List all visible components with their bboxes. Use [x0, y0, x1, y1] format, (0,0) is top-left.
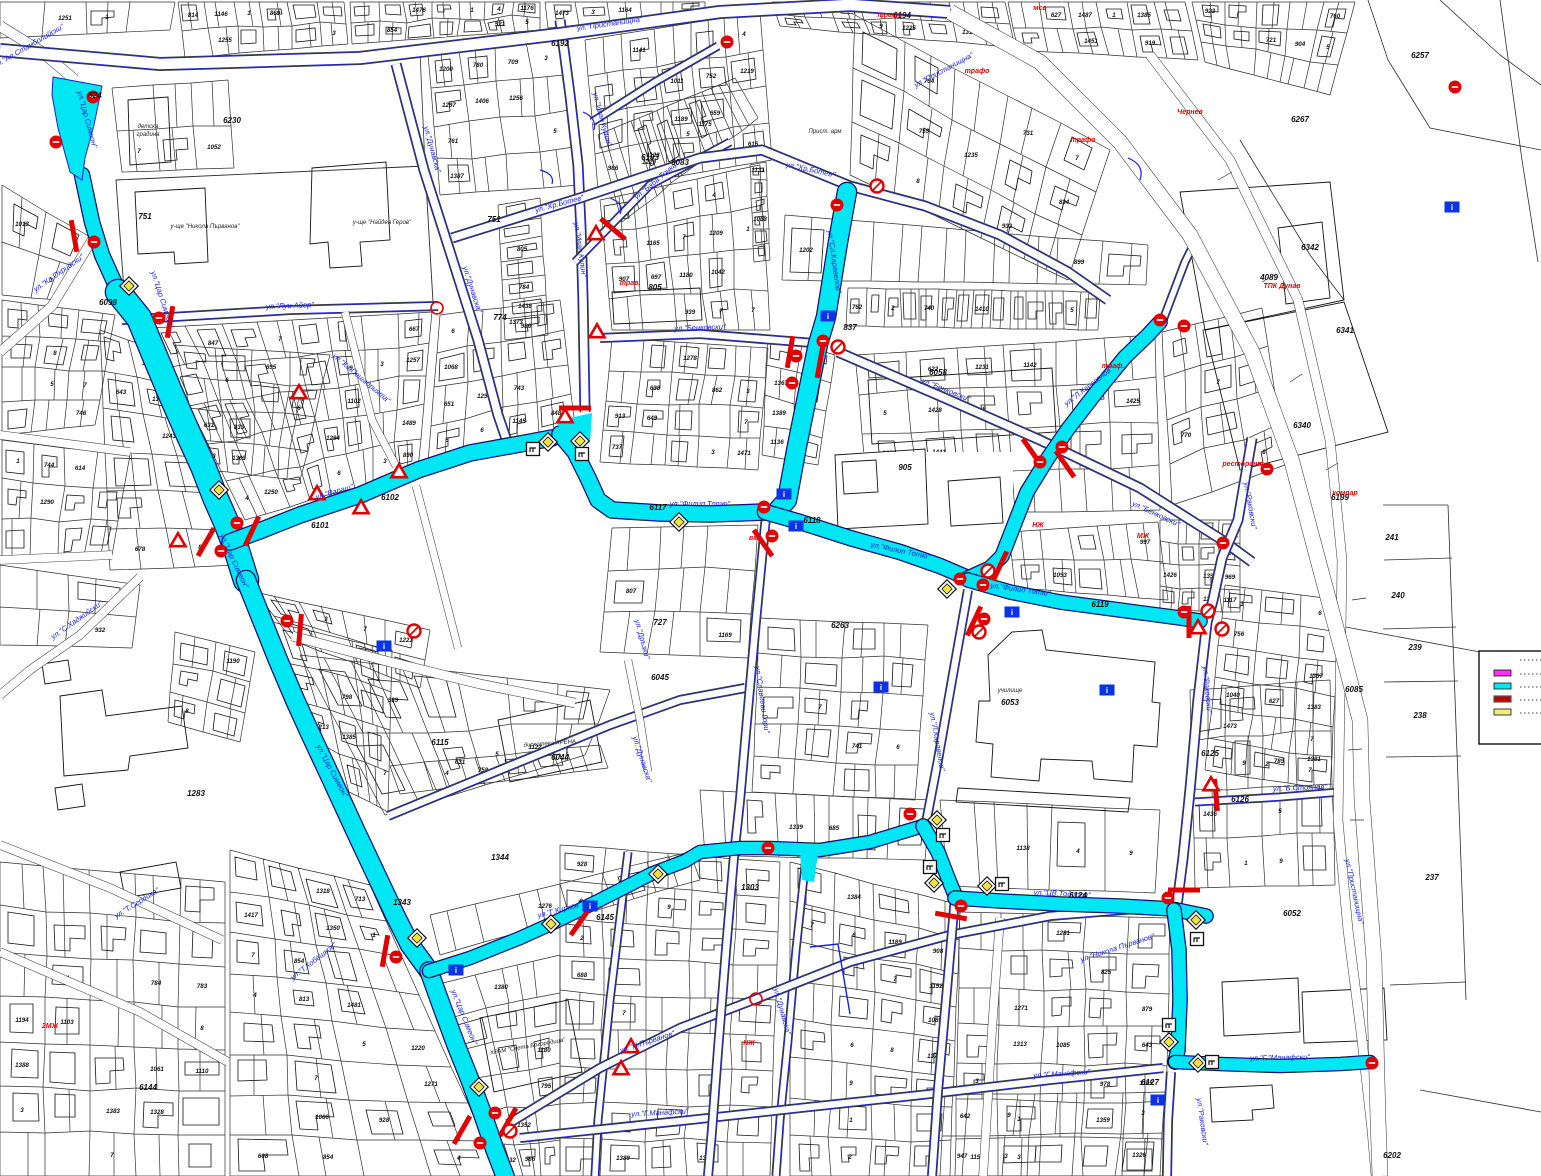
- svg-text:783: 783: [197, 983, 208, 990]
- svg-text:7: 7: [1075, 155, 1079, 162]
- svg-text:4: 4: [1075, 848, 1080, 855]
- svg-text:1141: 1141: [632, 47, 646, 54]
- svg-text:у-ще "Никола Първанов": у-ще "Никола Първанов": [170, 224, 241, 230]
- svg-text:1189: 1189: [674, 116, 688, 123]
- svg-text:1142: 1142: [1023, 362, 1037, 369]
- svg-text:траф.: траф.: [1102, 363, 1125, 370]
- svg-text:5: 5: [495, 751, 499, 758]
- svg-text:1103: 1103: [60, 1019, 74, 1026]
- svg-text:6: 6: [850, 1042, 854, 1049]
- svg-text:6: 6: [896, 744, 900, 751]
- svg-text:1136: 1136: [770, 439, 784, 446]
- svg-text:608: 608: [258, 1153, 269, 1160]
- svg-text:1110: 1110: [196, 1068, 209, 1075]
- svg-text:6199: 6199: [1331, 493, 1349, 502]
- svg-text:7: 7: [278, 336, 282, 343]
- svg-text:7: 7: [251, 952, 255, 959]
- svg-text:6144: 6144: [139, 1083, 157, 1092]
- svg-text:4: 4: [244, 495, 249, 502]
- svg-text:9: 9: [849, 1080, 853, 1087]
- svg-text:7: 7: [1308, 767, 1312, 774]
- svg-text:1436: 1436: [1203, 811, 1217, 818]
- svg-text:1145: 1145: [512, 418, 526, 425]
- svg-text:1307: 1307: [1309, 673, 1323, 680]
- svg-text:7: 7: [744, 419, 748, 426]
- svg-text:847: 847: [208, 340, 219, 347]
- svg-text:i: i: [1451, 203, 1453, 212]
- svg-text:740: 740: [924, 305, 935, 312]
- svg-text:939: 939: [685, 309, 696, 316]
- svg-text:1011: 1011: [670, 78, 684, 85]
- svg-text:трафо: трафо: [878, 12, 904, 19]
- svg-text:4: 4: [711, 192, 716, 199]
- svg-text:1194: 1194: [15, 1017, 29, 1024]
- svg-text:3: 3: [20, 1107, 24, 1114]
- svg-text:6267: 6267: [1291, 115, 1309, 124]
- svg-text:986: 986: [521, 323, 532, 330]
- svg-text:3: 3: [380, 361, 384, 368]
- svg-text:НЖ: НЖ: [743, 1040, 755, 1047]
- svg-text:6192: 6192: [551, 39, 569, 48]
- svg-text:ул."Г."Манафски": ул."Г."Манафски": [1249, 1052, 1310, 1062]
- svg-text:8: 8: [200, 1025, 204, 1032]
- svg-text:1406: 1406: [475, 98, 489, 105]
- svg-text:9: 9: [1129, 850, 1133, 857]
- svg-text:5: 5: [445, 437, 449, 444]
- svg-text:928: 928: [379, 1117, 390, 1124]
- svg-text:923: 923: [1205, 8, 1216, 15]
- svg-text:6202: 6202: [1383, 1151, 1401, 1160]
- svg-text:1257: 1257: [406, 357, 420, 364]
- svg-text:761: 761: [448, 138, 459, 145]
- svg-text:4: 4: [444, 770, 449, 777]
- svg-text:642: 642: [960, 1113, 971, 1120]
- svg-text:2: 2: [1264, 761, 1269, 768]
- svg-text:5: 5: [1326, 44, 1330, 51]
- svg-text:760: 760: [1330, 13, 1341, 20]
- svg-text:805: 805: [648, 283, 662, 292]
- svg-text:933: 933: [1002, 223, 1013, 230]
- svg-text:854: 854: [387, 27, 398, 34]
- svg-text:5: 5: [1070, 307, 1074, 314]
- svg-text:1068: 1068: [444, 364, 458, 371]
- svg-text:854: 854: [323, 1154, 334, 1161]
- svg-text:741: 741: [852, 743, 863, 750]
- svg-text:6342: 6342: [1301, 243, 1319, 252]
- svg-text:6126: 6126: [1231, 795, 1249, 804]
- svg-text:i: i: [795, 522, 797, 531]
- svg-text:1180: 1180: [679, 272, 693, 279]
- svg-text:1013: 1013: [15, 221, 29, 228]
- svg-text:училище: училище: [997, 688, 1023, 694]
- svg-text:1385: 1385: [1137, 12, 1151, 19]
- svg-text:1: 1: [746, 226, 750, 233]
- svg-text:1175: 1175: [698, 121, 712, 128]
- svg-text:1042: 1042: [711, 269, 725, 276]
- svg-text:1473: 1473: [1223, 723, 1237, 730]
- svg-text:3: 3: [544, 55, 548, 62]
- svg-text:1350: 1350: [326, 925, 340, 932]
- svg-text:3: 3: [711, 449, 715, 456]
- svg-text:1283: 1283: [187, 789, 205, 798]
- svg-text:1152: 1152: [929, 983, 943, 990]
- svg-text:905: 905: [898, 463, 912, 472]
- svg-text:6124: 6124: [1069, 891, 1087, 900]
- svg-text:1063: 1063: [753, 216, 767, 223]
- svg-text:5: 5: [50, 381, 54, 388]
- svg-text:997: 997: [1140, 539, 1151, 546]
- svg-text:986: 986: [525, 1156, 536, 1163]
- svg-text:6118: 6118: [803, 516, 821, 525]
- svg-text:i: i: [455, 966, 457, 975]
- svg-text:3: 3: [591, 9, 595, 16]
- svg-text:6115: 6115: [431, 738, 449, 747]
- svg-text:1487: 1487: [1078, 12, 1092, 19]
- svg-text:1: 1: [1240, 601, 1244, 608]
- svg-text:6119: 6119: [1091, 600, 1109, 609]
- svg-text:837: 837: [843, 323, 857, 332]
- svg-text:6: 6: [297, 405, 301, 412]
- svg-text:1417: 1417: [244, 912, 258, 919]
- svg-text:3: 3: [1017, 1154, 1021, 1161]
- svg-text:2: 2: [579, 935, 584, 942]
- svg-text:1278: 1278: [683, 355, 697, 362]
- svg-text:1235: 1235: [964, 152, 978, 159]
- svg-text:651: 651: [444, 401, 455, 408]
- svg-text:1303: 1303: [741, 883, 759, 892]
- svg-text:939: 939: [388, 697, 399, 704]
- svg-text:1: 1: [1244, 860, 1248, 867]
- svg-text:890: 890: [403, 452, 414, 459]
- svg-text:1344: 1344: [491, 853, 509, 862]
- svg-text:4: 4: [496, 6, 501, 13]
- svg-text:6052: 6052: [1283, 909, 1301, 918]
- svg-text:1425: 1425: [1126, 398, 1140, 405]
- svg-text:784: 784: [151, 980, 162, 987]
- svg-text:5: 5: [525, 19, 529, 26]
- svg-text:трав.: трав.: [620, 280, 641, 287]
- svg-text:795: 795: [541, 1083, 552, 1090]
- svg-text:3: 3: [332, 30, 336, 37]
- svg-text:238: 238: [1412, 711, 1427, 720]
- svg-text:i: i: [880, 683, 882, 692]
- svg-text:6044: 6044: [551, 753, 569, 762]
- svg-text:7: 7: [818, 704, 822, 711]
- svg-text:4: 4: [741, 31, 746, 38]
- svg-text:1: 1: [849, 1117, 853, 1124]
- svg-text:6053: 6053: [1001, 698, 1019, 707]
- svg-text:1: 1: [247, 10, 251, 17]
- svg-text:ул."Филип Тотю": ул."Филип Тотю": [669, 499, 731, 508]
- svg-text:ул."Луи Айер": ул."Луи Айер": [265, 300, 315, 311]
- svg-text:1146: 1146: [214, 11, 228, 18]
- svg-text:НЖ: НЖ: [1032, 522, 1044, 529]
- svg-text:7: 7: [682, 234, 686, 241]
- svg-text:1438: 1438: [518, 303, 532, 310]
- svg-text:1117: 1117: [1224, 597, 1237, 604]
- svg-text:3: 3: [1004, 1153, 1008, 1160]
- svg-text:8: 8: [185, 708, 189, 715]
- svg-text:770: 770: [1181, 432, 1192, 439]
- svg-text:1451: 1451: [1084, 38, 1098, 45]
- svg-text:5: 5: [1278, 808, 1282, 815]
- svg-text:744: 744: [44, 462, 55, 469]
- svg-text:6058: 6058: [929, 368, 947, 377]
- svg-text:ресторант: ресторант: [1221, 461, 1263, 468]
- svg-text:834: 834: [1059, 199, 1070, 206]
- svg-text:5: 5: [686, 131, 690, 138]
- svg-text:731: 731: [1023, 130, 1034, 137]
- svg-text:9: 9: [1279, 858, 1283, 865]
- svg-text:825: 825: [1101, 969, 1112, 976]
- svg-text:6098: 6098: [99, 298, 117, 307]
- svg-text:1489: 1489: [402, 420, 416, 427]
- svg-text:921: 921: [495, 21, 506, 28]
- svg-text:1040: 1040: [1226, 692, 1240, 699]
- svg-text:1225: 1225: [902, 25, 916, 32]
- svg-text:3: 3: [1141, 1110, 1145, 1117]
- svg-text:737: 737: [612, 444, 623, 451]
- svg-text:4: 4: [252, 992, 257, 999]
- svg-text:240: 240: [1390, 591, 1405, 600]
- svg-text:1297: 1297: [442, 102, 456, 109]
- svg-text:688: 688: [577, 972, 588, 979]
- svg-text:624: 624: [88, 91, 102, 100]
- svg-text:6341: 6341: [1336, 326, 1354, 335]
- svg-text:627: 627: [1269, 698, 1280, 705]
- svg-text:762: 762: [852, 304, 863, 311]
- svg-text:643: 643: [116, 389, 127, 396]
- svg-text:2: 2: [847, 1154, 852, 1161]
- svg-text:759: 759: [919, 128, 930, 135]
- svg-text:6101: 6101: [311, 521, 329, 530]
- svg-text:1: 1: [372, 932, 376, 939]
- svg-text:1: 1: [470, 7, 474, 14]
- svg-text:i: i: [827, 312, 829, 321]
- svg-text:6: 6: [337, 470, 341, 477]
- svg-text:Чернев: Чернев: [1177, 109, 1203, 116]
- svg-text:1339: 1339: [789, 824, 803, 831]
- svg-text:1387: 1387: [450, 173, 464, 180]
- svg-text:932: 932: [95, 627, 106, 634]
- svg-text:1: 1: [16, 458, 20, 465]
- svg-text:638: 638: [650, 385, 661, 392]
- svg-text:709: 709: [508, 59, 519, 66]
- svg-text:1318: 1318: [316, 888, 330, 895]
- svg-text:743: 743: [514, 385, 525, 392]
- svg-text:1428: 1428: [928, 407, 942, 414]
- svg-text:756: 756: [1234, 631, 1245, 638]
- svg-text:ТПК Дунав: ТПК Дунав: [1263, 283, 1301, 290]
- svg-text:1380: 1380: [494, 984, 508, 991]
- svg-text:i: i: [1106, 686, 1108, 695]
- svg-text:6230: 6230: [223, 116, 241, 125]
- svg-text:1281: 1281: [1056, 930, 1070, 937]
- svg-text:697: 697: [651, 274, 662, 281]
- svg-text:813: 813: [299, 996, 310, 1003]
- svg-text:Прист. арм: Прист. арм: [808, 129, 841, 135]
- svg-text:1473: 1473: [555, 10, 569, 17]
- svg-text:7: 7: [751, 307, 755, 314]
- svg-text:7: 7: [810, 922, 814, 929]
- svg-text:6085: 6085: [1345, 685, 1363, 694]
- svg-text:1093: 1093: [1053, 572, 1067, 579]
- svg-text:1: 1: [1112, 12, 1116, 19]
- svg-text:1102: 1102: [347, 398, 361, 405]
- svg-text:1389: 1389: [616, 1155, 630, 1162]
- svg-text:746: 746: [76, 410, 87, 417]
- svg-text:i: i: [1011, 608, 1013, 617]
- svg-text:1303: 1303: [232, 455, 246, 462]
- svg-text:1164: 1164: [618, 7, 632, 14]
- svg-text:1476: 1476: [412, 7, 426, 14]
- svg-text:1052: 1052: [207, 144, 221, 151]
- svg-text:6257: 6257: [1411, 51, 1429, 60]
- svg-text:1: 1: [105, 14, 109, 21]
- svg-text:899: 899: [1074, 259, 1085, 266]
- svg-text:751: 751: [487, 215, 501, 224]
- svg-text:1176: 1176: [520, 5, 534, 12]
- svg-text:6103: 6103: [641, 153, 659, 162]
- svg-text:6125: 6125: [1201, 749, 1219, 758]
- svg-text:643: 643: [1142, 1042, 1153, 1049]
- svg-text:детска: детска: [138, 124, 159, 130]
- svg-text:9: 9: [667, 904, 671, 911]
- svg-text:862: 862: [712, 387, 723, 394]
- svg-text:237: 237: [1424, 873, 1439, 882]
- svg-text:1200: 1200: [439, 66, 453, 73]
- svg-text:7: 7: [719, 308, 723, 315]
- svg-text:928: 928: [577, 861, 588, 868]
- svg-text:1251: 1251: [58, 15, 72, 22]
- svg-text:i: i: [383, 642, 385, 651]
- svg-text:241: 241: [1384, 533, 1399, 542]
- svg-text:1294: 1294: [326, 435, 340, 442]
- svg-text:у-ще "Найден Геров": у-ще "Найден Геров": [352, 219, 412, 226]
- svg-text:1410: 1410: [975, 306, 989, 313]
- svg-text:1169: 1169: [718, 632, 732, 639]
- svg-text:5: 5: [553, 128, 557, 135]
- svg-text:1313: 1313: [1013, 1041, 1027, 1048]
- svg-text:6117: 6117: [649, 503, 667, 512]
- svg-text:614: 614: [75, 465, 86, 472]
- svg-text:1138: 1138: [1016, 845, 1030, 852]
- svg-text:1326: 1326: [1132, 1152, 1146, 1159]
- svg-text:780: 780: [473, 62, 484, 69]
- svg-text:913: 913: [615, 413, 626, 420]
- svg-text:713: 713: [355, 896, 366, 903]
- svg-text:751: 751: [138, 212, 152, 221]
- svg-text:1383: 1383: [1307, 704, 1321, 711]
- svg-text:вх: вх: [749, 535, 758, 542]
- svg-text:i: i: [783, 490, 785, 499]
- svg-text:7: 7: [1310, 736, 1314, 743]
- svg-text:2МЖ: 2МЖ: [41, 1023, 59, 1030]
- svg-text:1231: 1231: [975, 364, 989, 371]
- svg-text:6083: 6083: [671, 158, 689, 167]
- svg-text:1359: 1359: [1096, 1117, 1110, 1124]
- svg-text:1061: 1061: [150, 1066, 164, 1073]
- svg-text:1328: 1328: [150, 1109, 164, 1116]
- svg-text:1256: 1256: [509, 95, 523, 102]
- svg-text:3: 3: [383, 458, 387, 465]
- svg-text:7: 7: [110, 1152, 114, 1159]
- svg-text:649: 649: [647, 415, 658, 422]
- svg-text:919: 919: [1145, 40, 1156, 47]
- svg-text:i: i: [1157, 1096, 1159, 1105]
- svg-text:1: 1: [1017, 1116, 1021, 1123]
- svg-text:978: 978: [1100, 1081, 1111, 1088]
- svg-text:6: 6: [225, 377, 229, 384]
- svg-text:6: 6: [852, 932, 856, 939]
- svg-text:1384: 1384: [847, 894, 861, 901]
- svg-text:мсв: мсв: [1033, 5, 1047, 12]
- svg-text:1481: 1481: [347, 1002, 361, 1009]
- svg-text:1180: 1180: [537, 1047, 551, 1054]
- svg-text:784: 784: [519, 284, 530, 291]
- svg-text:1255: 1255: [218, 37, 232, 44]
- svg-text:1131: 1131: [751, 167, 765, 174]
- svg-text:1385: 1385: [342, 734, 356, 741]
- svg-text:627: 627: [1051, 12, 1062, 19]
- svg-text:678: 678: [135, 546, 146, 553]
- svg-text:908: 908: [933, 948, 944, 955]
- svg-text:774: 774: [493, 313, 507, 322]
- svg-text:1343: 1343: [393, 898, 411, 907]
- svg-text:805: 805: [517, 246, 528, 253]
- svg-text:МЖ: МЖ: [1137, 533, 1150, 540]
- svg-text:1389: 1389: [772, 410, 786, 417]
- svg-text:1388: 1388: [15, 1062, 29, 1069]
- svg-text:ул."Бенковски": ул."Бенковски": [673, 322, 726, 333]
- svg-text:814: 814: [188, 12, 199, 19]
- svg-text:727: 727: [653, 618, 667, 627]
- svg-text:1086: 1086: [315, 1114, 329, 1121]
- svg-text:1383: 1383: [106, 1108, 120, 1115]
- svg-text:6127: 6127: [1141, 1078, 1159, 1087]
- svg-text:трафо: трафо: [965, 68, 991, 75]
- svg-text:8: 8: [53, 350, 57, 357]
- svg-text:4: 4: [456, 1155, 461, 1162]
- svg-text:6145: 6145: [596, 913, 614, 922]
- svg-text:градина: градина: [137, 132, 161, 138]
- svg-text:8: 8: [890, 1047, 894, 1054]
- svg-text:869: 869: [270, 10, 281, 17]
- svg-text:трафо: трафо: [1071, 137, 1097, 144]
- svg-text:1471: 1471: [737, 450, 751, 457]
- svg-text:947: 947: [957, 1153, 968, 1160]
- svg-text:1085: 1085: [1056, 1042, 1070, 1049]
- svg-text:7: 7: [363, 626, 367, 633]
- svg-text:6045: 6045: [651, 673, 669, 682]
- svg-text:1250: 1250: [264, 489, 278, 496]
- svg-text:7: 7: [893, 976, 897, 983]
- svg-text:798: 798: [342, 694, 353, 701]
- svg-text:969: 969: [1225, 574, 1236, 581]
- svg-text:8: 8: [1262, 449, 1266, 456]
- svg-text:1165: 1165: [646, 240, 660, 247]
- svg-text:3: 3: [746, 388, 750, 395]
- svg-text:9: 9: [1007, 1112, 1011, 1119]
- svg-text:5: 5: [883, 410, 887, 417]
- svg-text:721: 721: [1266, 37, 1277, 44]
- svg-text:8: 8: [916, 178, 920, 185]
- svg-text:7: 7: [83, 382, 87, 389]
- svg-text:6: 6: [480, 427, 484, 434]
- svg-text:807: 807: [626, 588, 637, 595]
- svg-text:1290: 1290: [40, 499, 54, 506]
- svg-text:6102: 6102: [381, 493, 399, 502]
